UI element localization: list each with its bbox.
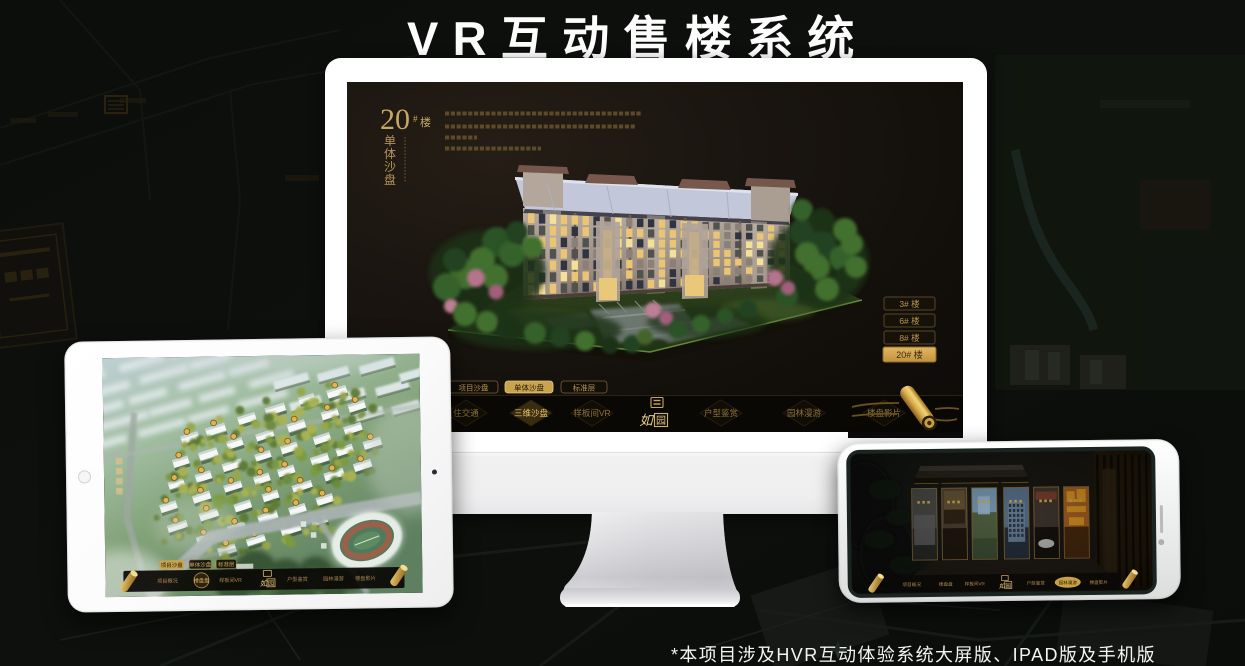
svg-text:沙: 沙 xyxy=(384,160,396,174)
svg-text:标准层: 标准层 xyxy=(573,383,596,393)
svg-text:园林漫游: 园林漫游 xyxy=(323,574,344,582)
svg-text:园: 园 xyxy=(268,580,275,588)
svg-text:户型鉴赏: 户型鉴赏 xyxy=(704,408,738,418)
svg-text:楼盘盘: 楼盘盘 xyxy=(194,576,210,584)
svg-text:楼: 楼 xyxy=(420,115,431,129)
svg-text:盘: 盘 xyxy=(384,172,396,187)
svg-text:单体沙盘: 单体沙盘 xyxy=(514,383,544,393)
svg-text:住交通: 住交通 xyxy=(453,408,479,418)
svg-text:户型鉴赏: 户型鉴赏 xyxy=(287,575,308,583)
svg-text:8# 楼: 8# 楼 xyxy=(899,333,920,343)
svg-text:园: 园 xyxy=(1005,582,1011,589)
svg-text:如: 如 xyxy=(639,413,654,428)
svg-text:20# 楼: 20# 楼 xyxy=(896,349,923,360)
svg-text:项目概况: 项目概况 xyxy=(157,577,179,585)
svg-text:样板间VR: 样板间VR xyxy=(573,408,610,418)
svg-text:园: 园 xyxy=(656,415,666,427)
svg-text:6# 楼: 6# 楼 xyxy=(899,316,920,326)
svg-text:项目沙盘: 项目沙盘 xyxy=(459,383,489,393)
svg-text:#: # xyxy=(413,114,418,124)
svg-text:三维沙盘: 三维沙盘 xyxy=(514,408,549,418)
svg-text:体: 体 xyxy=(384,147,396,161)
svg-text:标准层: 标准层 xyxy=(218,560,235,568)
svg-text:园林漫游: 园林漫游 xyxy=(787,408,822,418)
svg-text:3# 楼: 3# 楼 xyxy=(899,299,920,309)
svg-text:20: 20 xyxy=(380,103,410,136)
svg-text:单: 单 xyxy=(384,134,396,148)
